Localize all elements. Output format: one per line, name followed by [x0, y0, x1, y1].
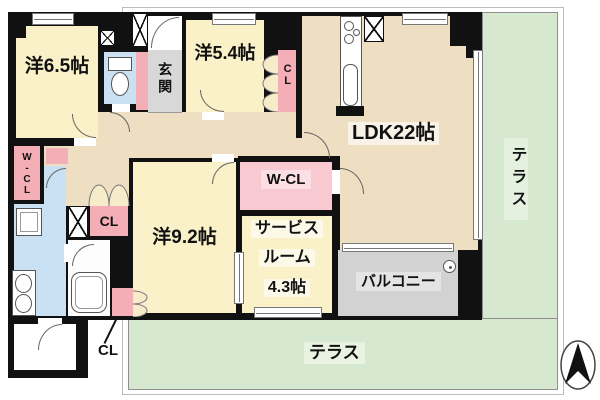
toilet-icon [108, 57, 132, 71]
room-label-west92: 洋9.2帖 [133, 227, 236, 249]
wall-notch-west65 [16, 26, 26, 38]
door-opening-west65 [74, 138, 96, 146]
window-west54-top [212, 13, 256, 25]
closet-label-cl-hall: CL [90, 213, 128, 229]
room-west-5-4 [186, 20, 264, 112]
bathtub-icon [71, 272, 107, 313]
room-label-ldk: LDK22帖 [348, 122, 439, 145]
window-ldk-balcony [342, 243, 454, 252]
north-arrow-icon [558, 338, 598, 392]
floor-plan: 洋6.5帖 洋5.4帖 LDK22帖 洋9.2帖 サービス ルーム 4.3帖 W… [0, 0, 600, 400]
door-opening-toilet [112, 104, 130, 112]
window-service-bottom [254, 307, 322, 318]
window-west65-top [32, 13, 74, 25]
stove-burner-icon-2 [353, 29, 360, 36]
hall-ldk-door-opening [294, 138, 304, 158]
cl-leader-line [104, 316, 119, 344]
folding-door-cl-hall-icon [88, 184, 130, 206]
toilet-bowl-icon [111, 72, 129, 96]
door-opening-bathroom [64, 244, 72, 262]
room-label-genkan: 玄関 [157, 62, 173, 96]
shaft-icon-a [100, 30, 115, 46]
room-label-service-1: サービス [242, 220, 332, 238]
room-label-service-3: 4.3帖 [242, 279, 332, 297]
window-ldk-top [402, 13, 448, 25]
closet-label-cl-west92: CL [90, 342, 126, 359]
terrace-bottom-label: テラス [304, 342, 365, 364]
balcony-label: バルコニー [356, 272, 441, 291]
window-ldk-right [473, 50, 483, 240]
basin-icon-2 [15, 294, 32, 313]
terrace-right-label: テラス [504, 138, 528, 220]
shaft-icon-kitchen [364, 16, 384, 42]
closet-label-cl-west54: CL [281, 63, 294, 87]
door-opening-west54 [202, 112, 224, 120]
door-opening-west92 [212, 154, 234, 162]
room-label-service-2: ルーム [242, 249, 332, 267]
door-opening-porch [38, 318, 62, 324]
folding-door-cl-west92-icon [133, 290, 148, 317]
washing-machine-icon [16, 208, 42, 236]
kitchen-end-cap [336, 106, 364, 116]
closet-cl-west92 [112, 288, 133, 316]
room-label-wcl-center: W-CL [240, 170, 332, 189]
closet-linen [46, 148, 68, 164]
kitchen-sink-icon [343, 64, 358, 106]
drain-icon [443, 260, 456, 273]
stove-burner-icon-3 [344, 34, 354, 44]
folding-door-cl-west54-icon [262, 54, 278, 112]
stove-burner-icon-1 [344, 21, 354, 31]
closet-label-wcl-left: W-CL [21, 149, 33, 199]
shaft-icon-mid [68, 206, 88, 238]
door-opening-wcl-center [332, 170, 340, 194]
shaft-icon-b [132, 13, 148, 47]
room-label-west65: 洋6.5帖 [16, 56, 98, 78]
room-label-west54: 洋5.4帖 [186, 43, 264, 64]
basin-icon-1 [15, 274, 32, 293]
closet-shoe [136, 52, 148, 110]
